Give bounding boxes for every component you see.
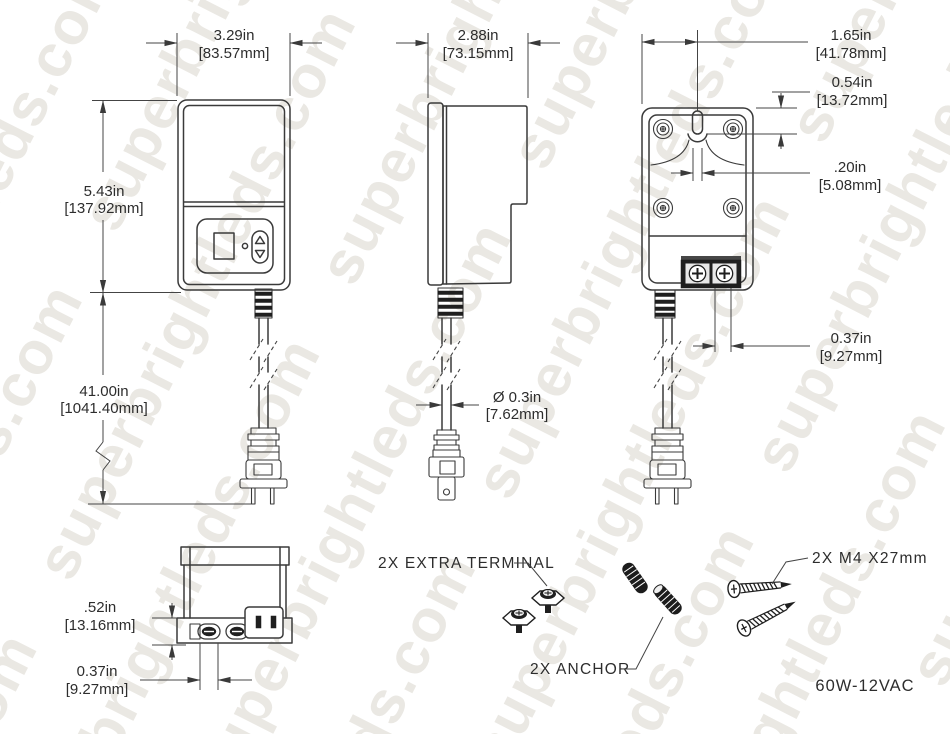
cable-break-icon [250, 367, 277, 390]
dim-keyhole-inset [707, 92, 810, 149]
front-body [178, 100, 290, 290]
cable-break-icon [433, 367, 460, 390]
screw-icon [724, 120, 743, 139]
dim-side-depth-in: 2.88in [458, 27, 499, 44]
side-plug [429, 430, 464, 500]
dim-cord-length-in: 41.00in [79, 383, 128, 400]
keyhole-bulb [688, 134, 707, 142]
dim-cord-diameter-mm: [7.62mm] [486, 406, 549, 423]
side-body [428, 103, 527, 285]
side-view: 2.88in [73.15mm] [396, 27, 560, 500]
side-cord [429, 288, 464, 500]
m4-screw-label: 2X M4 X27mm [812, 550, 928, 567]
extra-terminal-icon [503, 609, 535, 633]
dim-keyhole-offset-in: 1.65in [831, 27, 872, 44]
dim-terminal-wire-gap-in: 0.37in [831, 330, 872, 347]
terminal-screw-icon [689, 265, 705, 281]
dim-bottom-terminal-gap-mm: [9.27mm] [66, 681, 129, 698]
screw-icon [724, 199, 743, 218]
dim-terminal-wire-gap-mm: [9.27mm] [820, 348, 883, 365]
extra-terminal-icon [532, 589, 564, 613]
dim-terminal-wire-gap [693, 288, 810, 352]
bottom-terminals [198, 624, 248, 639]
front-cord [240, 289, 287, 504]
m4-screw-icon [727, 575, 792, 598]
dim-keyhole-slot-in: .20in [834, 159, 867, 176]
anchor-icon [620, 560, 650, 595]
indicator-led [242, 243, 247, 248]
dim-front-width-mm: [83.57mm] [199, 45, 270, 62]
dim-keyhole-slot-mm: [5.08mm] [819, 177, 882, 194]
back-plug [644, 428, 691, 504]
m4-screw-leader [772, 558, 808, 584]
control-panel [197, 219, 273, 273]
cable-break-icon [654, 367, 681, 390]
dim-keyhole-inset-in: 0.54in [832, 74, 873, 91]
down-arrow-icon [256, 251, 265, 258]
dim-base-height-mm: [13.16mm] [65, 617, 136, 634]
screw-icon [654, 199, 673, 218]
dim-keyhole-inset-mm: [13.72mm] [817, 92, 888, 109]
screw-icon [654, 120, 673, 139]
m4-screw-icon [735, 594, 800, 638]
cable-break-icon [250, 339, 277, 362]
cable-break-icon [654, 339, 681, 362]
back-view: 1.65in [41.78mm] [642, 27, 887, 504]
display-window [214, 233, 234, 259]
drawing-svg: 3.29in [83.57mm] [0, 0, 950, 734]
included-parts: 2X EXTRA TERMINAL [378, 550, 928, 678]
dim-base-height [152, 603, 186, 660]
dim-cord-length-mm: [1041.40mm] [60, 400, 148, 417]
bottom-view: .52in [13.16mm] 0.37in [9.27mm] [65, 547, 292, 698]
dim-keyhole-offset [642, 30, 808, 111]
anchor-icon [651, 582, 684, 616]
dim-front-width-in: 3.29in [214, 27, 255, 44]
dim-base-height-in: .52in [84, 599, 117, 616]
dim-front-height-in: 5.43in [84, 183, 125, 200]
front-plug [240, 428, 287, 504]
dim-cord-diameter-in: Ø 0.3in [493, 389, 541, 406]
technical-drawing-page: superbrightleds.comsuperbrightleds.comsu… [0, 0, 950, 734]
bottom-socket [245, 607, 283, 638]
front-view: 3.29in [83.57mm] [60, 27, 322, 504]
back-cord [644, 290, 691, 504]
dim-front-height-mm: [137.92mm] [64, 200, 143, 217]
terminal-block [681, 256, 741, 288]
cable-break-icon [433, 339, 460, 362]
dim-bottom-terminal-gap [140, 643, 252, 690]
dim-side-depth-mm: [73.15mm] [443, 45, 514, 62]
up-arrow-icon [256, 237, 265, 244]
dim-keyhole-offset-mm: [41.78mm] [816, 45, 887, 62]
part-number: 60W-12VAC [815, 677, 914, 695]
terminal-screw-icon [716, 265, 732, 281]
anchor-label: 2X ANCHOR [530, 661, 630, 678]
dim-bottom-terminal-gap-in: 0.37in [77, 663, 118, 680]
